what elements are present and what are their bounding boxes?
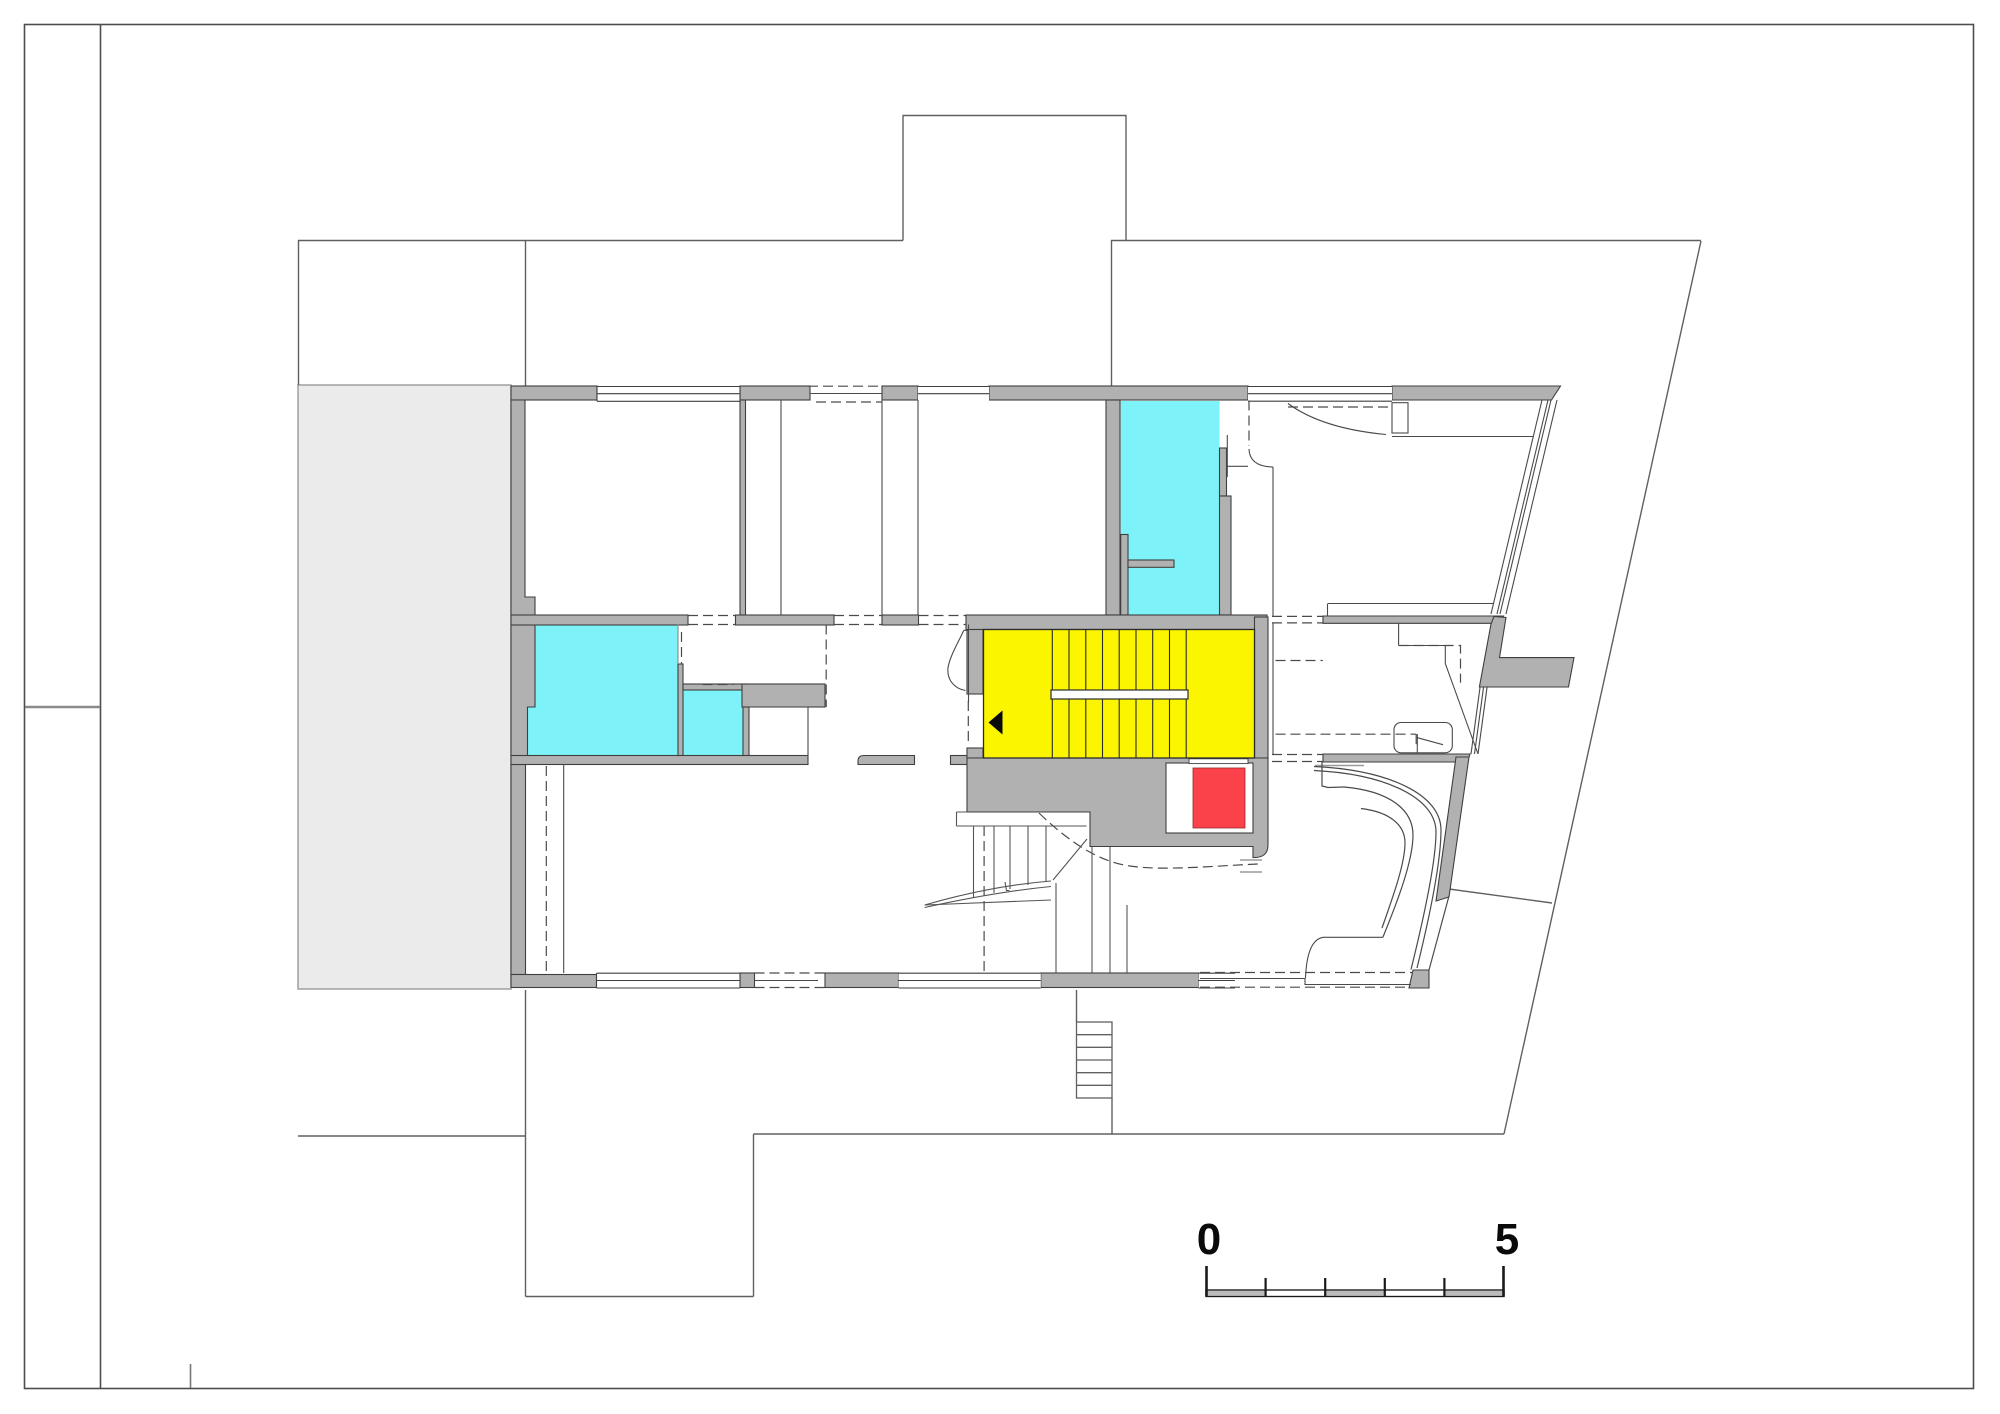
svg-text:0: 0 [1197, 1215, 1221, 1264]
svg-text:5: 5 [1495, 1215, 1519, 1264]
